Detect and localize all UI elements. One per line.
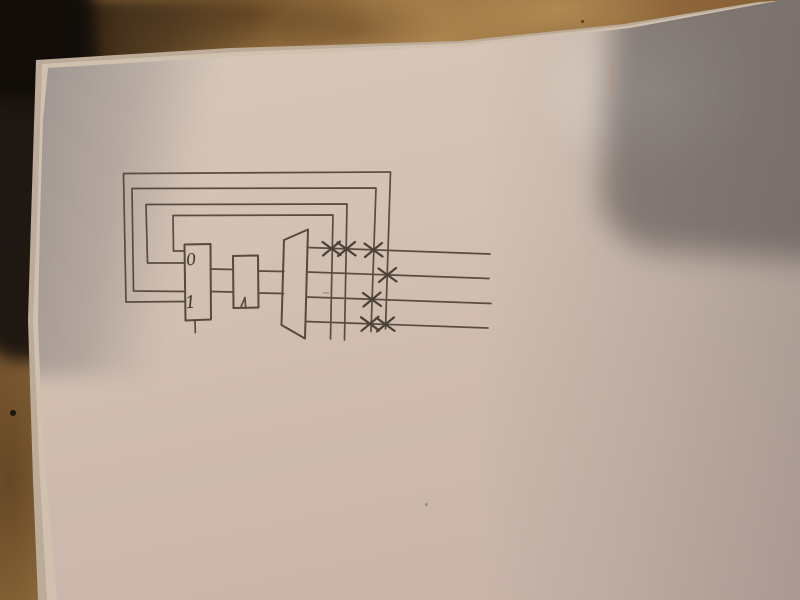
output-row-2 [308, 272, 490, 279]
output-row-4 [306, 322, 489, 329]
wire-register-demux-lower [259, 293, 284, 294]
feedback-loop-2 [132, 188, 376, 332]
demux-trapezoid [282, 230, 309, 339]
wire-mux-register-upper [211, 269, 234, 270]
mux-label-1: 1 [184, 292, 197, 313]
register-clock-caret [241, 298, 246, 309]
output-row-3 [307, 297, 492, 304]
photo-scene: 0 1 [0, 0, 800, 600]
circuit-sketch: 0 1 [0, 0, 800, 600]
mux-label-0: 0 [185, 249, 198, 269]
wire-mux-register-lower [211, 292, 233, 293]
wire-register-demux-upper [259, 271, 285, 272]
